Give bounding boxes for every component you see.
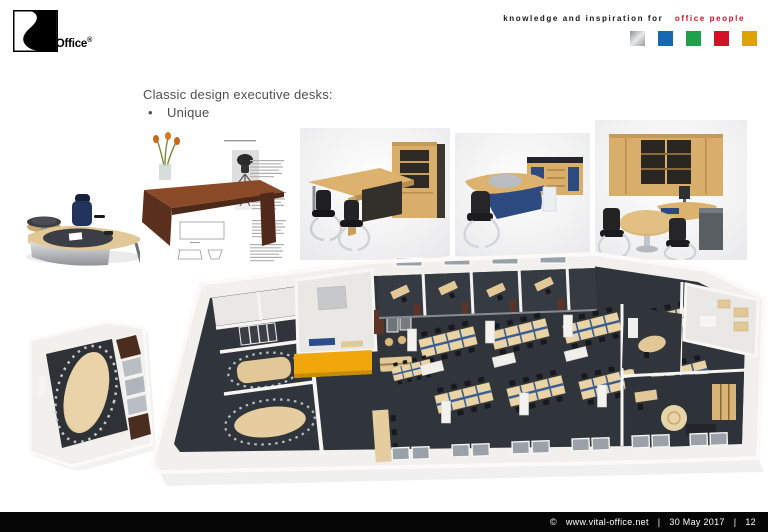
image-office-set [595,120,747,260]
footer-separator: | [734,517,737,527]
tagline: knowledge and inspiration for office peo… [503,14,745,23]
image-floor-plan [146,246,768,502]
copyright-icon: © [550,517,557,527]
footer-bar: © www.vital-office.net | 30 May 2017 | 1… [0,512,768,532]
cabinet-wall [609,134,723,196]
footer-separator: | [658,517,661,527]
brand-square-gold-icon [742,31,757,46]
footer-page-number: 12 [745,517,756,527]
brand-square-blue-icon [658,31,673,46]
orange-accent-room [294,270,376,378]
tagline-black: knowledge and inspiration for [503,14,663,23]
registered-mark: ® [87,37,92,44]
image-blue-desk-sideboard [455,133,590,260]
brand-color-squares [630,31,757,46]
brand-square-green-icon [686,31,701,46]
bullet-dot: • [143,105,158,120]
image-beech-desk-cabinet [300,128,450,260]
office-chair [72,194,105,226]
image-conference-room [20,318,162,470]
footer-date: 30 May 2017 [669,517,724,527]
vital-office-logo [13,10,58,57]
title-block: Classic design executive desks: • Unique [143,87,333,120]
bullet-text: Unique [158,105,209,120]
footer-site: www.vital-office.net [566,517,649,527]
top-offices [376,254,597,318]
tagline-red: office people [675,14,745,23]
logo-wordmark: Vital-Office® [29,37,92,50]
slide: Vital-Office® knowledge and inspiration … [0,0,768,532]
brand-square-red-icon [714,31,729,46]
bullet-item: • Unique [143,105,333,120]
brand-square-silver-icon [630,31,645,46]
image-executive-desk [14,183,150,267]
page-title: Classic design executive desks: [143,87,333,102]
